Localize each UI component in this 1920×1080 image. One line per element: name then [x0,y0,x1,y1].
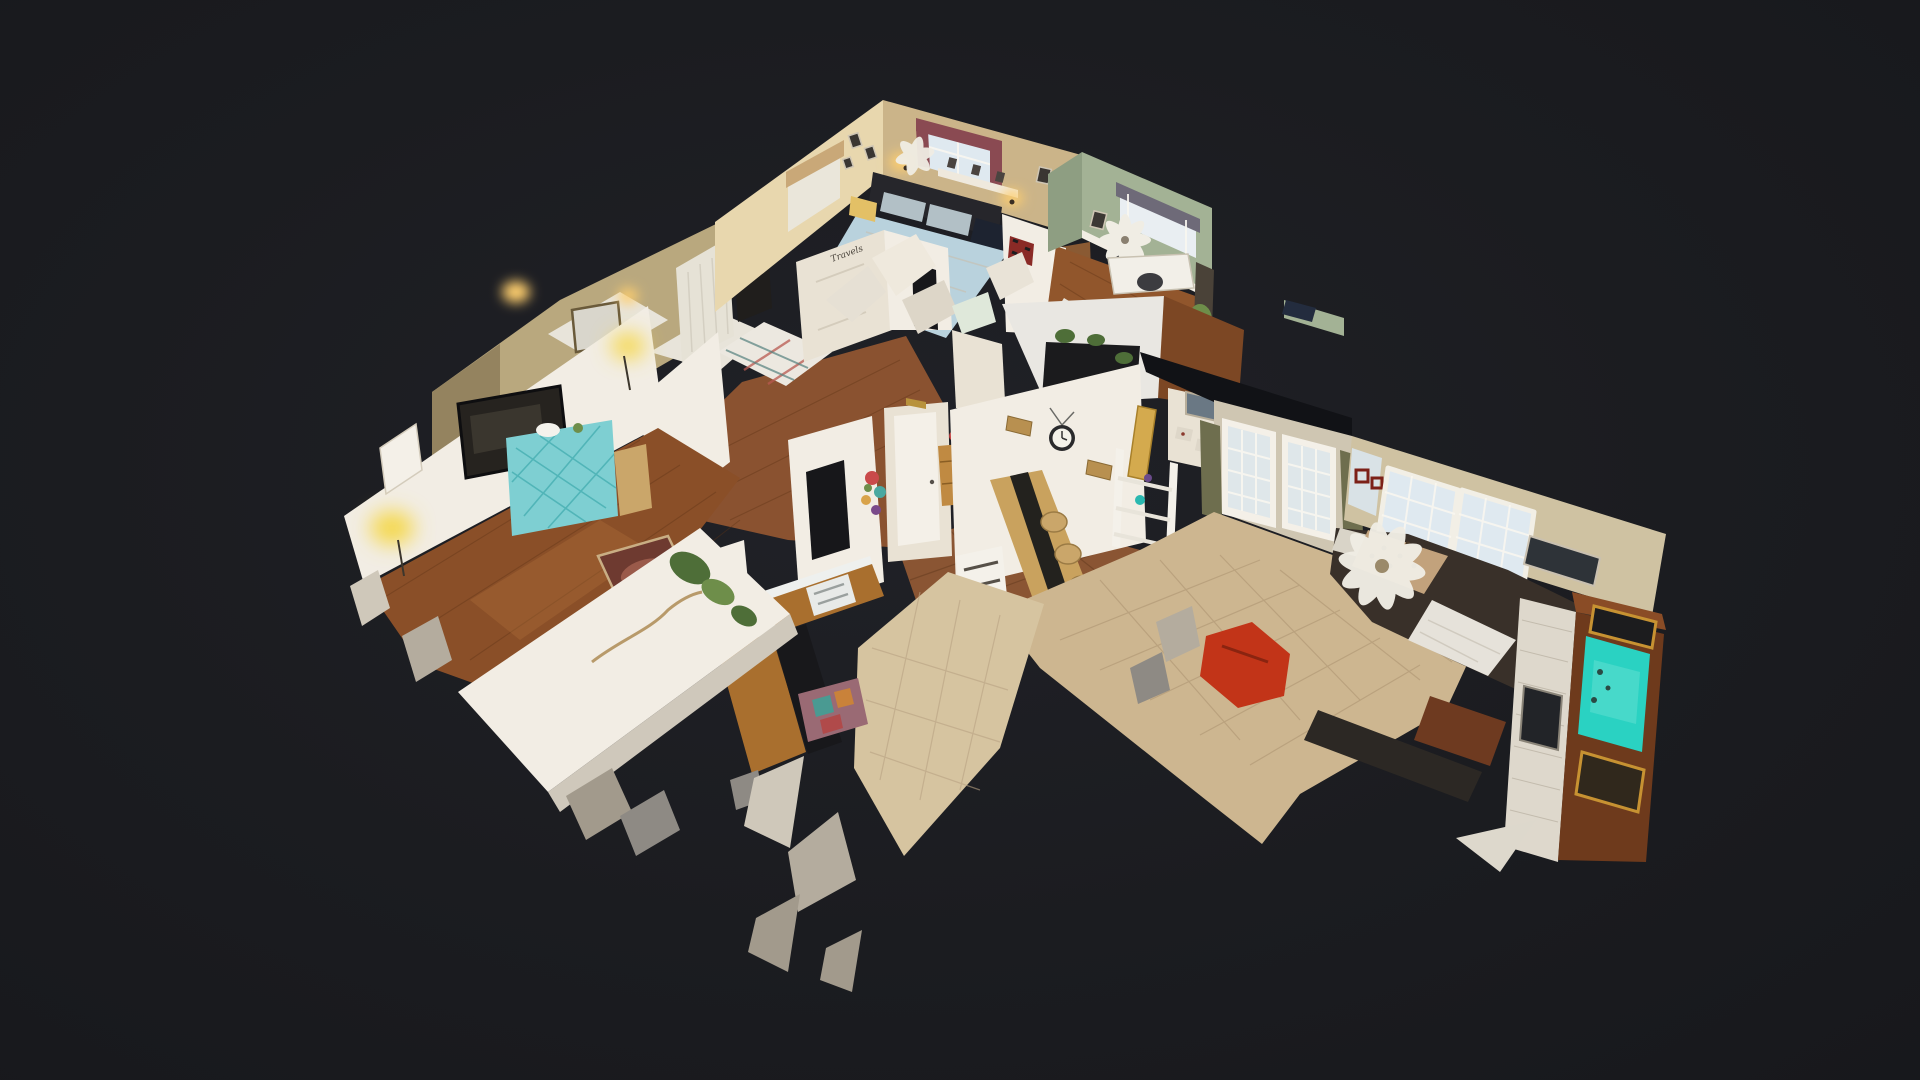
wicker-chair [614,444,652,516]
kitchen-tile-floor [854,572,1044,856]
dollhouse-3d-viewport[interactable]: Travels [0,0,1920,1080]
office-wall-frame [1090,211,1106,230]
hall-sconce-glow [618,288,638,304]
passthrough-opening [806,460,850,560]
room-living-room[interactable] [344,306,798,856]
bedroom1-sconce-right [1010,200,1015,205]
closet-lamp-glow [502,281,530,303]
mesh-shards-bottom [730,756,862,992]
rack-item-purple [1144,474,1152,482]
console-plant-decor [573,423,583,433]
curtain-olive-left [1200,420,1222,520]
front-door [894,412,940,546]
front-door-knob [930,480,934,484]
rack-item-teal [1135,495,1145,505]
panel-knob-1 [1181,432,1185,436]
office-chair [1137,273,1163,291]
french-door-1 [1222,418,1276,528]
floor-lamp-glow-right [611,333,645,359]
console-swan-decor [536,423,560,437]
dollhouse-render: Travels [0,0,1920,1080]
brick-framed-picture [1520,686,1562,750]
french-door-2 [1282,434,1336,542]
floor-lamp-glow-left [370,511,414,545]
